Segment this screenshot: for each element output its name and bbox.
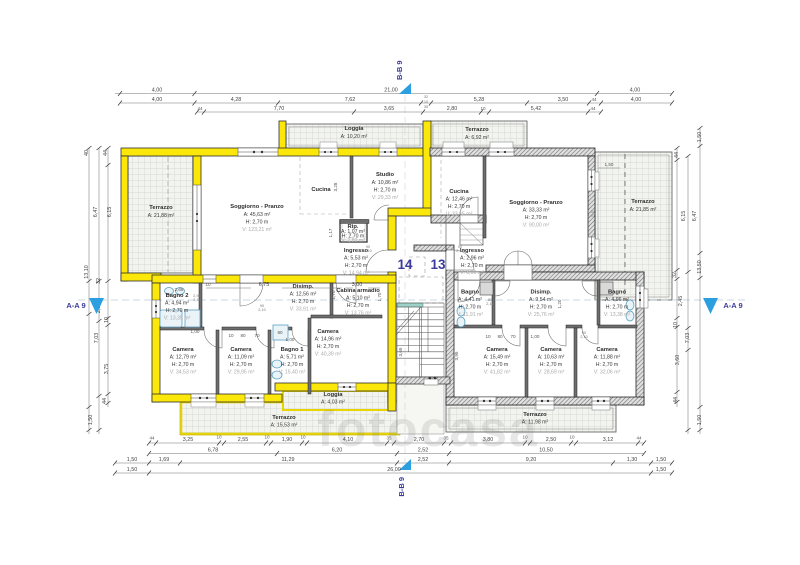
svg-text:3,60: 3,60 [675,355,681,366]
svg-text:A: 4,41 m²: A: 4,41 m² [458,297,482,303]
svg-text:V: 33,91 m²: V: 33,91 m² [290,307,317,313]
svg-text:V: 41,82 m²: V: 41,82 m² [484,370,511,376]
svg-text:2,10: 2,10 [364,249,371,253]
svg-text:Studio: Studio [376,172,394,178]
svg-text:H: 2,70 m: H: 2,70 m [347,303,370,309]
svg-text:1,50: 1,50 [697,415,703,426]
svg-text:V: 8,00 m²: V: 8,00 m² [460,270,484,276]
svg-text:1,70: 1,70 [331,290,336,299]
svg-text:1,50: 1,50 [88,415,94,426]
svg-text:35: 35 [424,105,428,109]
svg-text:2,52: 2,52 [418,457,429,463]
svg-text:H: 2,70 m: H: 2,70 m [461,263,484,269]
svg-text:V: 14,94 m²: V: 14,94 m² [343,271,370,277]
svg-text:10: 10 [205,282,211,287]
svg-text:Camera: Camera [540,347,562,353]
svg-text:1,00: 1,00 [531,334,540,339]
svg-text:32: 32 [96,278,102,284]
svg-text:1,50: 1,50 [605,162,614,167]
svg-text:H: 2,70 m: H: 2,70 m [606,305,629,311]
svg-text:32: 32 [672,272,678,278]
svg-text:Disimp.: Disimp. [531,290,552,296]
svg-text:3,65: 3,65 [398,347,403,356]
svg-text:A: 11,88 m²: A: 11,88 m² [594,355,621,361]
svg-text:2,10: 2,10 [486,302,493,306]
svg-text:Camera: Camera [230,347,252,353]
svg-text:2,40: 2,40 [587,214,594,218]
svg-text:Camera: Camera [596,347,618,353]
svg-text:Terrazzo: Terrazzo [631,199,655,205]
svg-text:10: 10 [673,322,679,328]
svg-text:10: 10 [228,333,234,338]
svg-text:3,50: 3,50 [558,97,569,103]
svg-text:Cucina: Cucina [449,189,469,195]
svg-text:10: 10 [264,435,270,440]
svg-text:V: 29,95 m²: V: 29,95 m² [228,370,255,376]
svg-text:H: 2,70 m: H: 2,70 m [530,305,553,311]
svg-text:14: 14 [397,257,413,272]
svg-text:A: 11,09 m²: A: 11,09 m² [228,355,255,361]
svg-text:A: 10,63 m²: A: 10,63 m² [538,355,565,361]
svg-text:A: 2,96 m²: A: 2,96 m² [460,256,484,262]
svg-text:V: 123,21 m²: V: 123,21 m² [242,227,272,233]
svg-text:H: 2,70 m: H: 2,70 m [525,215,548,221]
svg-text:V: 28,69 m²: V: 28,69 m² [538,370,565,376]
svg-text:A: 12,46 m²: A: 12,46 m² [446,197,473,203]
svg-text:Camera: Camera [172,347,194,353]
svg-text:Bagno 2: Bagno 2 [166,293,189,299]
svg-text:10: 10 [216,435,222,440]
svg-text:Loggia: Loggia [345,126,365,132]
svg-text:10: 10 [485,334,491,339]
svg-text:H: 2,70 m: H: 2,70 m [486,362,509,368]
svg-text:1,20: 1,20 [557,299,562,308]
svg-text:2,10: 2,10 [258,308,265,312]
svg-text:1,50: 1,50 [127,467,138,473]
svg-text:H: 2,70 m: H: 2,70 m [246,220,269,226]
svg-text:B-B 9: B-B 9 [395,60,404,80]
svg-text:H: 2,70 m: H: 2,70 m [317,344,340,350]
svg-text:V: 29,33 m²: V: 29,33 m² [372,195,399,201]
svg-text:A: 4,94 m²: A: 4,94 m² [165,301,189,307]
svg-text:2,65: 2,65 [175,287,184,292]
svg-text:7,70: 7,70 [274,106,285,112]
svg-text:1,17: 1,17 [328,228,333,237]
svg-text:7,03: 7,03 [685,333,691,344]
svg-text:B-B 9: B-B 9 [397,477,406,497]
svg-text:V: 13,38 m²: V: 13,38 m² [604,312,631,318]
svg-text:H: 2,70 m: H: 2,70 m [374,188,397,194]
svg-text:V: 33,65 m²: V: 33,65 m² [446,212,473,218]
svg-text:1,50: 1,50 [656,467,667,473]
svg-text:Camera: Camera [486,347,508,353]
svg-text:44: 44 [149,436,155,441]
svg-text:32: 32 [424,95,428,99]
svg-text:3,12: 3,12 [603,437,614,443]
svg-text:80: 80 [277,330,283,335]
svg-text:9,20: 9,20 [526,457,537,463]
svg-text:Disimp.: Disimp. [293,284,314,290]
svg-text:26,00: 26,00 [387,467,401,473]
svg-text:Bagno: Bagno [461,290,479,296]
svg-text:13: 13 [430,257,446,272]
svg-text:A: 6,92 m²: A: 6,92 m² [465,135,489,141]
svg-text:3,75: 3,75 [104,364,110,375]
svg-text:3,28: 3,28 [333,182,338,191]
svg-text:44: 44 [590,106,596,111]
svg-text:44: 44 [674,152,680,158]
svg-text:13,10: 13,10 [84,265,90,279]
svg-text:4,00: 4,00 [631,97,642,103]
svg-text:Terrazzo: Terrazzo [465,127,489,133]
svg-text:2,10: 2,10 [456,249,463,253]
svg-text:H: 2,70 m: H: 2,70 m [448,204,471,210]
svg-text:A: 10,20 m²: A: 10,20 m² [341,134,368,140]
svg-text:3,25: 3,25 [183,437,194,443]
svg-text:80: 80 [497,334,503,339]
svg-text:V: 32,06 m²: V: 32,06 m² [594,370,621,376]
svg-text:A: 45,63 m²: A: 45,63 m² [244,212,271,218]
svg-text:V: 90,00 m²: V: 90,00 m² [523,223,550,229]
svg-text:44: 44 [197,106,203,111]
svg-text:40: 40 [84,150,90,156]
svg-text:H: 2,70 m: H: 2,70 m [166,308,189,314]
svg-text:70: 70 [510,334,516,339]
svg-text:V: 34,53 m²: V: 34,53 m² [170,370,197,376]
svg-text:80: 80 [240,333,246,338]
svg-text:2,44: 2,44 [193,298,200,302]
svg-text:H: 2,70 m: H: 2,70 m [172,362,195,368]
svg-text:H: 2,70 m: H: 2,70 m [230,362,253,368]
svg-text:5,28: 5,28 [474,97,485,103]
svg-text:V: 13,35 m²: V: 13,35 m² [164,316,191,322]
svg-text:V: 11,91 m²: V: 11,91 m² [457,312,484,318]
svg-text:fotocasa: fotocasa [317,401,539,457]
svg-text:H: 2,70 m: H: 2,70 m [540,362,563,368]
svg-text:6,78: 6,78 [208,448,219,454]
svg-text:H: 2,70 m: H: 2,70 m [345,263,368,269]
svg-text:10: 10 [569,435,575,440]
svg-text:V: 2,89 m²: V: 2,89 m² [341,238,365,244]
svg-text:A: 15,49 m²: A: 15,49 m² [484,355,511,361]
svg-text:3,00: 3,00 [352,282,363,288]
svg-text:10: 10 [300,435,306,440]
svg-text:A: 9,54 m²: A: 9,54 m² [529,297,553,303]
svg-text:1,50: 1,50 [697,132,703,143]
svg-text:Terrazzo: Terrazzo [272,415,296,421]
svg-text:3,95: 3,95 [454,351,459,360]
svg-text:A: 15,53 m²: A: 15,53 m² [271,423,298,429]
svg-text:4,00: 4,00 [152,88,163,94]
svg-text:6,15: 6,15 [107,207,113,218]
svg-text:A: 12,79 m²: A: 12,79 m² [170,355,197,361]
svg-text:44: 44 [102,398,108,404]
svg-text:4,00: 4,00 [152,97,163,103]
svg-text:10,50: 10,50 [539,448,553,454]
svg-text:H: 2,70 m: H: 2,70 m [292,299,315,305]
svg-text:Cabina armadio: Cabina armadio [336,288,380,294]
svg-text:V: 25,76 m²: V: 25,76 m² [528,312,555,318]
svg-text:A: 21,85 m²: A: 21,85 m² [630,207,657,213]
svg-text:4,00: 4,00 [630,88,641,94]
svg-text:4,28: 4,28 [231,97,242,103]
svg-text:A: 5,71 m²: A: 5,71 m² [280,355,304,361]
svg-text:2,55: 2,55 [238,437,249,443]
svg-text:1,50: 1,50 [656,457,667,463]
svg-text:44: 44 [103,150,109,156]
svg-text:Bagno 1: Bagno 1 [281,347,305,353]
svg-text:10: 10 [424,100,428,104]
svg-text:3,65: 3,65 [384,106,395,112]
svg-text:2,80: 2,80 [447,106,458,112]
svg-text:6,47: 6,47 [93,207,99,218]
svg-text:H: 2,70 m: H: 2,70 m [596,362,619,368]
svg-text:A: 10,86 m²: A: 10,86 m² [372,180,399,186]
svg-text:70: 70 [254,333,260,338]
svg-text:H: 2,70 m: H: 2,70 m [281,362,304,368]
svg-text:Bagno: Bagno [608,290,626,296]
svg-text:6,47: 6,47 [692,211,698,222]
svg-text:10: 10 [480,106,486,111]
svg-text:13,50: 13,50 [697,260,703,274]
svg-text:44: 44 [636,436,642,441]
svg-text:1,69: 1,69 [159,457,170,463]
svg-text:A: 33,33 m²: A: 33,33 m² [523,208,550,214]
svg-text:Camera: Camera [317,329,339,335]
svg-text:V: 13,76 m²: V: 13,76 m² [345,311,372,317]
svg-text:Loggia: Loggia [324,392,344,398]
svg-text:Terrazzo: Terrazzo [149,205,173,211]
svg-text:2,50: 2,50 [546,437,557,443]
svg-text:6,75: 6,75 [259,282,270,288]
svg-text:Soggiorno - Pranzo: Soggiorno - Pranzo [230,204,284,210]
svg-text:A: 5,10 m²: A: 5,10 m² [346,296,370,302]
svg-text:1,00: 1,00 [191,329,200,334]
svg-text:V: 15,40 m²: V: 15,40 m² [279,370,306,376]
svg-text:1,50: 1,50 [127,457,138,463]
svg-text:A: 4,96 m²: A: 4,96 m² [605,297,629,303]
svg-text:1,90: 1,90 [282,437,293,443]
svg-text:H: 2,70 m: H: 2,70 m [459,305,482,311]
svg-text:A: 12,56 m²: A: 12,56 m² [290,292,317,298]
svg-text:Soggiorno - Pranzo: Soggiorno - Pranzo [509,200,563,206]
svg-text:21,00: 21,00 [384,88,398,94]
svg-text:1,70: 1,70 [377,292,382,301]
svg-text:44: 44 [673,397,679,403]
svg-text:A-A 9: A-A 9 [723,301,742,310]
svg-text:A: 21,88 m²: A: 21,88 m² [148,213,175,219]
svg-text:44: 44 [591,97,597,102]
svg-text:7,03: 7,03 [94,333,100,344]
svg-text:A-A 9: A-A 9 [66,301,85,310]
svg-text:A: 5,53 m²: A: 5,53 m² [344,256,368,262]
svg-text:7,62: 7,62 [345,97,356,103]
svg-text:2,45: 2,45 [678,296,684,307]
svg-text:11,29: 11,29 [281,457,294,463]
svg-text:Cucina: Cucina [311,187,331,193]
svg-text:V: 40,39 m²: V: 40,39 m² [315,352,342,358]
svg-text:1,00: 1,00 [286,337,295,342]
svg-text:5,42: 5,42 [531,106,542,112]
svg-text:2,10: 2,10 [580,335,587,339]
svg-text:A: 14,96 m²: A: 14,96 m² [315,337,342,343]
svg-text:10: 10 [104,317,110,323]
svg-text:6,15: 6,15 [681,211,687,222]
svg-text:1,30: 1,30 [627,457,638,463]
